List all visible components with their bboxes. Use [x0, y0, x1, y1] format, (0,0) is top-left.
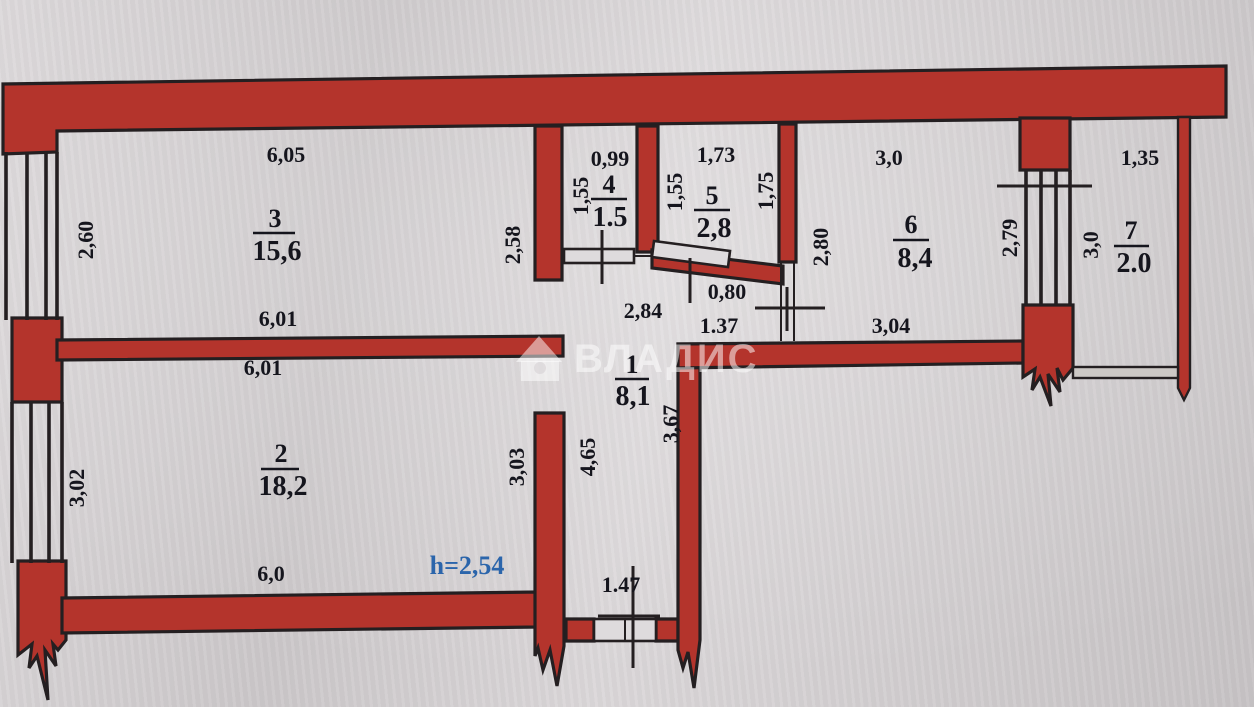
- dim-hall-side: 3,67: [658, 405, 683, 444]
- dim-room3-right: 2,58: [500, 226, 525, 265]
- dim-room4-top: 0,99: [591, 146, 630, 171]
- room4-area: 1.5: [593, 202, 628, 233]
- wall-left-mid-block: [12, 318, 62, 402]
- watermark-house-hole: [534, 362, 546, 374]
- dim-room3-top: 6,05: [267, 142, 306, 167]
- room-label-3: 3 15,6: [253, 204, 302, 267]
- entry-door-stub-right: [656, 619, 678, 641]
- wall-room5-room6: [779, 124, 796, 262]
- wall-room3-room4: [535, 126, 562, 280]
- dim-divider-above: 6,01: [259, 306, 298, 331]
- dim-room6-right: 2,79: [997, 219, 1022, 258]
- room6-number: 6: [905, 210, 918, 239]
- room5-number: 5: [706, 181, 719, 210]
- door-room4-threshold: [564, 249, 634, 263]
- room1-area: 8,1: [616, 381, 651, 412]
- dim-hall-top: 2,84: [624, 298, 663, 323]
- ceiling-height-label: h=2,54: [430, 551, 505, 580]
- dim-room3-left: 2,60: [73, 221, 98, 260]
- entry-door-stub-left: [566, 619, 594, 641]
- room2-area: 18,2: [259, 471, 308, 502]
- room5-area: 2,8: [697, 213, 732, 244]
- wall-room4-room5: [637, 126, 658, 252]
- dim-room2-left: 3,02: [64, 469, 89, 508]
- dim-room6-top: 3,0: [875, 145, 903, 170]
- dim-room6-left: 2,80: [808, 228, 833, 267]
- dim-room2-bottom: 6,0: [257, 561, 285, 586]
- floor-plan-drawing: 6,05 0,99 1,73 3,0 1,35 6,01 6,01 2,84 0…: [0, 0, 1254, 707]
- wall-room6-room7-top-block: [1020, 118, 1070, 170]
- dim-room6-bottom: 3,04: [872, 313, 911, 338]
- wall-balcony-right: [1178, 117, 1190, 400]
- dim-room5-top: 1,73: [697, 142, 736, 167]
- room-label-4: 4 1.5: [591, 170, 628, 233]
- dim-room5-left: 1,55: [662, 173, 687, 212]
- dim-hall-left: 4,65: [575, 438, 600, 477]
- dim-divider-below: 6,01: [244, 355, 283, 380]
- room6-area: 8,4: [898, 243, 933, 274]
- room7-number: 7: [1125, 216, 1138, 245]
- wall-room2-hall-torn: [535, 413, 564, 686]
- dim-room2-right: 3,03: [504, 448, 529, 487]
- balcony-rail: [1073, 367, 1178, 378]
- wall-hall-right-torn: [678, 344, 700, 688]
- dim-room7-left: 3,0: [1078, 231, 1103, 259]
- room3-number: 3: [269, 204, 282, 233]
- window-room3-left: [6, 152, 57, 320]
- dim-room7-top: 1,35: [1121, 145, 1160, 170]
- wall-room6-room7-bottom-block-torn: [1023, 305, 1073, 406]
- room3-area: 15,6: [253, 236, 302, 267]
- wall-divider-room3-room2: [57, 336, 563, 360]
- dim-room5-right: 1,75: [753, 172, 778, 211]
- dim-hall-right: 1.37: [700, 313, 739, 338]
- room-label-2: 2 18,2: [259, 439, 308, 502]
- wall-bottom: [62, 592, 537, 633]
- dim-room4-left: 1,55: [568, 177, 593, 216]
- room7-area: 2.0: [1117, 248, 1152, 279]
- wall-left-bottom-block-torn: [18, 561, 66, 700]
- watermark-text: ВЛАДИС: [574, 337, 758, 381]
- window-room2-left: [12, 402, 62, 563]
- floor-plan: 6,05 0,99 1,73 3,0 1,35 6,01 6,01 2,84 0…: [0, 0, 1254, 707]
- room-label-5: 5 2,8: [694, 181, 732, 244]
- room2-number: 2: [275, 439, 288, 468]
- room-label-6: 6 8,4: [893, 210, 933, 274]
- dim-hall-door: 0,80: [708, 279, 747, 304]
- room4-number: 4: [603, 170, 616, 199]
- dim-entry-door: 1.47: [602, 572, 641, 597]
- room-label-7: 7 2.0: [1114, 216, 1152, 279]
